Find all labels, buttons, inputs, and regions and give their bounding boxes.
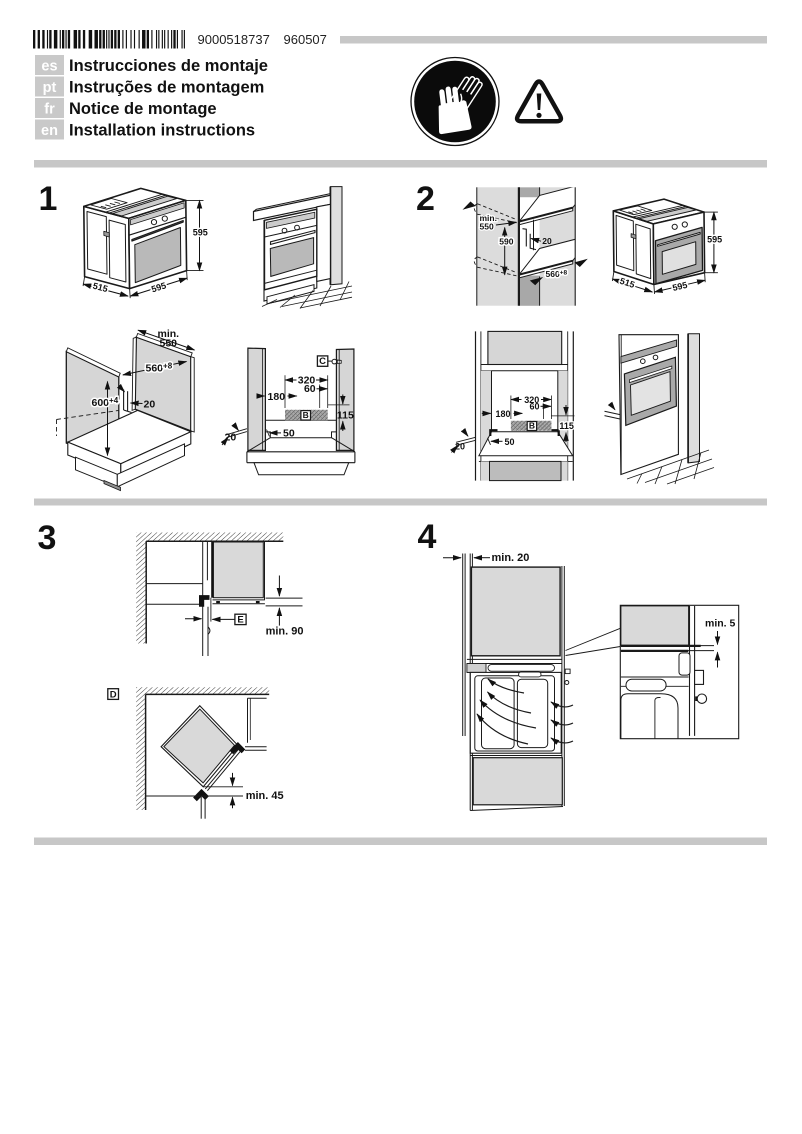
svg-text:Notice de montage: Notice de montage <box>69 100 217 118</box>
svg-text:180: 180 <box>495 409 510 419</box>
svg-text:9000518737: 9000518737 <box>198 32 270 47</box>
svg-text:20: 20 <box>455 442 465 452</box>
svg-text:20: 20 <box>225 431 237 443</box>
svg-text:50: 50 <box>283 427 295 439</box>
svg-text:es: es <box>41 59 57 75</box>
svg-text:min. 45: min. 45 <box>246 790 284 802</box>
svg-text:20: 20 <box>542 236 552 246</box>
svg-text:595: 595 <box>193 228 208 238</box>
svg-text:B: B <box>529 421 535 431</box>
svg-text:3: 3 <box>38 519 57 557</box>
svg-text:fr: fr <box>44 102 55 118</box>
svg-text:min. 20: min. 20 <box>492 552 530 564</box>
svg-text:C: C <box>319 356 326 367</box>
svg-text:60: 60 <box>304 383 316 395</box>
svg-text:min. 5: min. 5 <box>705 618 736 630</box>
svg-text:960507: 960507 <box>284 32 327 47</box>
svg-text:180: 180 <box>268 391 286 403</box>
svg-text:E: E <box>237 615 243 626</box>
svg-text:20: 20 <box>144 399 156 411</box>
svg-text:4: 4 <box>418 518 437 556</box>
svg-text:595: 595 <box>707 235 722 245</box>
svg-text:550: 550 <box>480 222 494 232</box>
svg-text:50: 50 <box>505 437 515 447</box>
svg-text:595: 595 <box>671 280 688 293</box>
svg-text:595: 595 <box>150 280 167 294</box>
svg-text:Instrucciones de montaje: Instrucciones de montaje <box>69 57 268 75</box>
svg-text:590: 590 <box>499 237 513 247</box>
svg-text:115: 115 <box>337 409 354 421</box>
svg-text:2: 2 <box>416 180 435 218</box>
svg-text:en: en <box>41 123 58 139</box>
svg-text:60: 60 <box>529 402 539 412</box>
svg-text:115: 115 <box>559 421 574 431</box>
svg-text:pt: pt <box>43 80 57 96</box>
svg-text:D: D <box>110 689 117 700</box>
svg-text:B: B <box>303 410 309 420</box>
svg-text:1: 1 <box>39 180 58 218</box>
svg-text:Installation instructions: Installation instructions <box>69 122 255 140</box>
svg-text:min. 90: min. 90 <box>266 626 304 638</box>
svg-text:Instruções de montagem: Instruções de montagem <box>69 79 264 97</box>
svg-text:550: 550 <box>160 338 178 350</box>
